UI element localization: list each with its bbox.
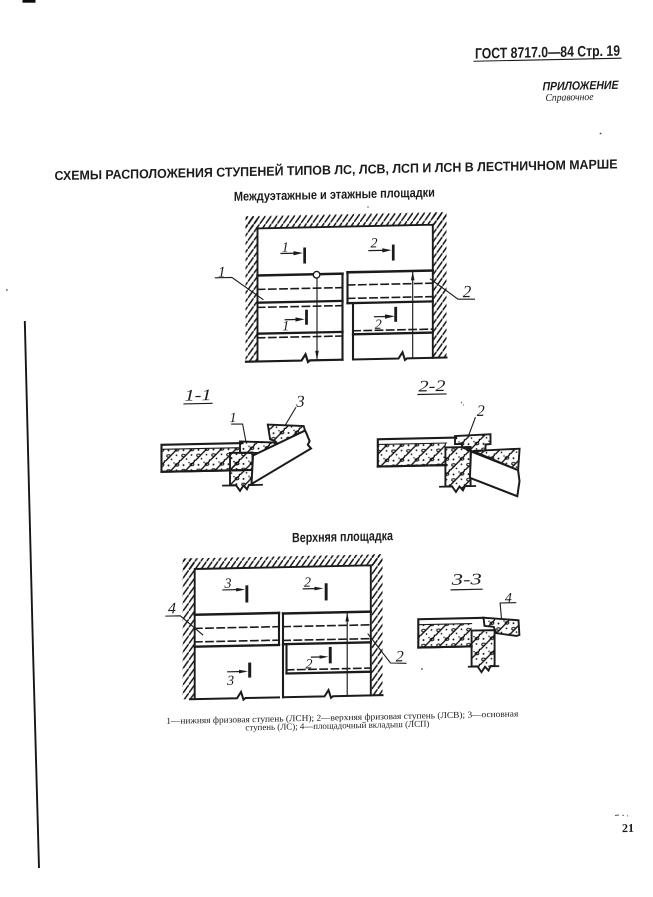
svg-text:2: 2 (375, 318, 382, 333)
svg-text:4: 4 (505, 591, 512, 606)
svg-text:Верхняя площадка: Верхняя площадка (292, 528, 393, 545)
svg-text:2: 2 (306, 657, 313, 672)
svg-text:4: 4 (168, 600, 176, 617)
svg-text:Справочное: Справочное (546, 92, 594, 104)
svg-text:1: 1 (218, 265, 225, 281)
svg-text:3: 3 (226, 674, 234, 689)
svg-text:2-2: 2-2 (419, 378, 446, 396)
svg-text:1-1: 1-1 (185, 387, 212, 405)
svg-text:ПРИЛОЖЕНИЕ: ПРИЛОЖЕНИЕ (543, 78, 620, 94)
svg-text:21: 21 (622, 821, 634, 835)
svg-text:2: 2 (477, 403, 485, 420)
svg-text:2: 2 (463, 282, 472, 301)
svg-text:2: 2 (371, 236, 378, 251)
svg-text:3: 3 (295, 392, 304, 411)
svg-text:1: 1 (282, 319, 289, 334)
svg-text:3-3: 3-3 (450, 571, 481, 589)
